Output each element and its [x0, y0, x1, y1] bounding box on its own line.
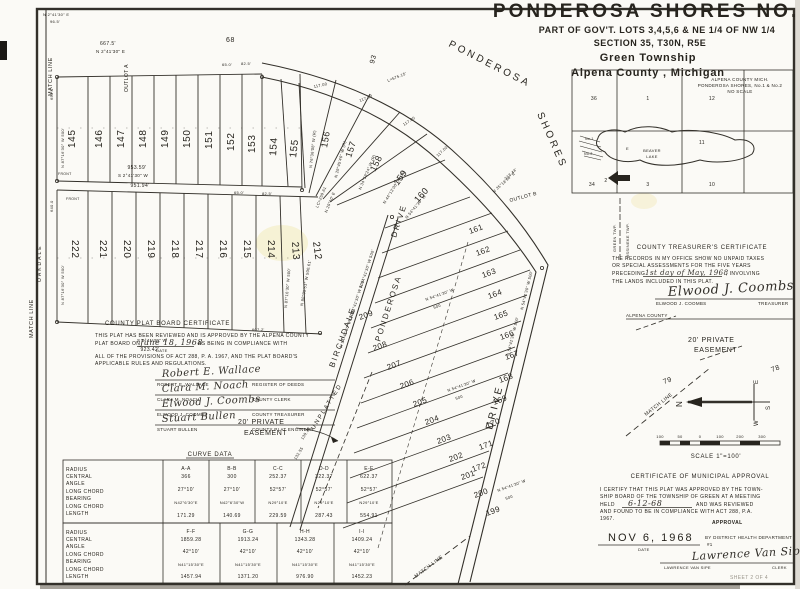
- scan-stain: [631, 193, 657, 209]
- inset-caption: NO SCALE: [727, 89, 752, 94]
- scale-segment: [740, 441, 760, 445]
- certificate-body: I CERTIFY THAT THIS PLAT WAS APPROVED BY…: [600, 487, 763, 493]
- lot-number: 218: [169, 240, 180, 259]
- curve-id: C-C: [273, 466, 283, 472]
- by-line: BY DISTRICT HEALTH DEPARTMENT: [705, 535, 792, 540]
- bearing-value: N29°10'E: [268, 500, 287, 505]
- section-number: 12: [709, 96, 715, 102]
- lot-number: 151: [204, 131, 215, 150]
- plat-county: Alpena County , Michigan: [571, 67, 725, 79]
- row-label: BEARING: [66, 559, 91, 565]
- compass-e-label: E: [754, 379, 760, 384]
- distance-label: 607.2': [252, 327, 265, 332]
- angle-value: 27°10': [178, 487, 194, 493]
- length-value: 554.91: [360, 513, 378, 519]
- section-number: 36: [591, 96, 597, 102]
- curve-id: G-G: [243, 529, 254, 535]
- certificate-body: THE RECORDS IN MY OFFICE SHOW NO UNPAID …: [612, 256, 765, 262]
- certificate-heading: COUNTY TREASURER'S CERTIFICATE: [637, 245, 767, 251]
- distance-label: 82.5': [262, 191, 272, 196]
- certificate-body: HELD: [600, 502, 615, 508]
- curve-id: A-A: [181, 466, 191, 472]
- length-value: 229.59: [269, 513, 287, 519]
- plat-title: PONDEROSA SHORES NO. 2: [493, 1, 800, 22]
- lot-number: 215: [241, 240, 252, 259]
- lot-number: 219: [145, 240, 156, 259]
- length-value: 1452.23: [352, 574, 373, 580]
- plat-section-line: SECTION 35, T30N, R5E: [594, 38, 707, 48]
- by-line: #1: [707, 542, 713, 547]
- lot-number: 221: [97, 240, 108, 259]
- plat-no1-label: No.1: [585, 137, 594, 141]
- bearing-value: N29°10'E: [314, 500, 333, 505]
- plat-subtitle: PART OF GOV'T. LOTS 3,4,5,6 & NE 1/4 OF …: [539, 25, 776, 35]
- bearing-value: N42°6'30"E: [174, 500, 197, 505]
- compass-s-label: S: [766, 405, 772, 410]
- oakdale-street-label: OAKDALE: [37, 244, 43, 282]
- radius-value: 1409.24: [352, 537, 373, 543]
- signer-name: ELWOOD J. COOMBS: [656, 301, 706, 306]
- row-label: LENGTH: [66, 511, 89, 517]
- angle-value: 52°57': [316, 487, 332, 493]
- certificate-body: 1967.: [600, 516, 615, 522]
- row-label: LONG CHORD: [66, 567, 104, 573]
- distance-label: 96.5': [50, 19, 60, 24]
- radius-value: 622.37: [360, 474, 378, 480]
- scale-segment: [700, 441, 720, 445]
- row-label: RADIUS: [66, 530, 88, 536]
- lot-number: 214: [265, 240, 276, 259]
- row-label: LONG CHORD: [66, 504, 104, 510]
- length-value: 1457.94: [181, 574, 202, 580]
- plat-map-canvas: PONDEROSA SHORES NO. 2 PART OF GOV'T. LO…: [0, 0, 800, 589]
- row-label: LONG CHORD: [66, 552, 104, 558]
- lot-number: 216: [217, 240, 228, 259]
- match-line-label: MATCH LINE: [48, 57, 54, 96]
- section-number: 1: [646, 96, 649, 102]
- plat-no2-label: No.2: [584, 152, 593, 156]
- signer-name: STUART BULLEN: [157, 427, 198, 432]
- row-label: BEARING: [66, 496, 91, 502]
- curve-id: D-D: [319, 466, 329, 472]
- easement-label: EASEMENT: [694, 347, 737, 354]
- lot-number: 147: [116, 130, 127, 149]
- distance-label: 667.5': [100, 41, 116, 47]
- radius-value: 322.37: [315, 474, 333, 480]
- table-title: CURVE DATA: [188, 452, 233, 458]
- bearing-value: N41°15'30"E: [292, 562, 318, 567]
- radius-value: 300: [227, 474, 237, 480]
- scale-segment: [660, 441, 670, 445]
- signer-title: REGISTER OF DEEDS: [252, 382, 304, 387]
- angle-value: 42°10': [354, 549, 370, 555]
- radius-value: 1859.28: [181, 537, 202, 543]
- county-label: ALPENA COUNTY: [626, 313, 668, 318]
- row-label: CENTRAL: [66, 474, 92, 480]
- outlot-a-label: OUTLOT A: [124, 64, 130, 92]
- length-value: 976.90: [296, 574, 314, 580]
- distance-label: 951.94': [130, 183, 149, 189]
- radius-value: 1913.24: [238, 537, 259, 543]
- angle-value: 42°10': [240, 549, 256, 555]
- scale-tick-label: 50: [677, 434, 683, 439]
- lot-number: 155: [288, 139, 301, 159]
- certificate-heading: CERTIFICATE OF MUNICIPAL APPROVAL: [631, 474, 770, 480]
- sheet-number: SHEET 2 OF 4: [730, 575, 768, 581]
- signer-name: LAWRENCE VAN SIPE: [664, 565, 711, 570]
- section-number: 34: [589, 182, 595, 188]
- green-twp-label: GREEN TWP.: [612, 224, 617, 252]
- row-label: ANGLE: [66, 481, 85, 487]
- approval-label: APPROVAL: [712, 520, 743, 526]
- ossineke-twp-label: OSSINEKE TWP.: [625, 223, 630, 258]
- handwritten-date: 1st day of May, 1968: [645, 269, 729, 277]
- bearing-value: N41°15'30"E: [349, 562, 375, 567]
- lot-number: 148: [138, 130, 149, 149]
- date-label: DATE: [638, 547, 650, 552]
- scale-tick-label: 200: [736, 434, 744, 439]
- length-value: 140.69: [223, 513, 241, 519]
- signer-title: TREASURER: [758, 301, 789, 306]
- certificate-body: APPLICABLE RULES AND REGULATIONS.: [95, 361, 207, 367]
- lot-number: 222: [69, 240, 80, 259]
- row-label: LENGTH: [66, 574, 89, 580]
- lake-name: BEAVER: [643, 148, 661, 153]
- certificate-body: AND FOUND TO BE IN COMPLIANCE WITH ACT 2…: [600, 509, 752, 515]
- distance-label: 82.5': [241, 61, 251, 66]
- curve-id: H-H: [300, 529, 310, 535]
- scale-tick-label: 100: [656, 434, 664, 439]
- lake-name: LAKE: [646, 154, 657, 159]
- bearing-value: N29°10'E: [359, 500, 378, 505]
- front-label: FRONT: [58, 172, 72, 176]
- distance-label: 65.0': [222, 62, 232, 67]
- section-number: 11: [699, 140, 705, 146]
- oakdale-street: OAKDALE: [37, 244, 43, 282]
- row-label: ANGLE: [66, 544, 85, 550]
- radius-value: 1343.28: [295, 537, 316, 543]
- lot-number: 149: [160, 130, 171, 149]
- signer-title: CLERK: [772, 565, 787, 570]
- lot-number: 217: [193, 240, 204, 259]
- inset-caption: ALPENA COUNTY MICH.: [711, 77, 768, 82]
- curve-id: F-F: [187, 529, 196, 535]
- length-value: 1371.20: [238, 574, 259, 580]
- lot-number: 220: [121, 240, 132, 259]
- distance-label: 953.59': [127, 165, 146, 171]
- signer-title: COUNTY PLAT ENGINEER: [252, 427, 314, 432]
- bearing-value: N42°6'30"W: [220, 500, 245, 505]
- handwritten-date: 6-12-68: [628, 499, 662, 508]
- compass-w-label: W: [754, 420, 760, 426]
- plat-township: Green Township: [600, 52, 697, 64]
- row-label: LONG CHORD: [66, 489, 104, 495]
- angle-value: 27°10': [224, 487, 240, 493]
- certificate-body: PRECEDING: [612, 271, 645, 277]
- bearing-label: N 87°16'30" W 500': [60, 128, 65, 168]
- scan-edge-mark: [0, 41, 7, 60]
- section-number: 10: [709, 182, 715, 188]
- inset-caption: PONDEROSA SHORES, No.1 & No.2: [698, 83, 783, 88]
- signer-title: COUNTY TREASURER: [252, 412, 305, 417]
- scale-tick-label: 100: [716, 434, 724, 439]
- certificate-body: , INVOLVING: [726, 271, 760, 277]
- certificate-heading: COUNTY PLAT BOARD CERTIFICATE: [105, 321, 230, 327]
- lot-number: 213: [289, 241, 301, 260]
- angle-value: 42°10': [183, 549, 199, 555]
- lot-number: 145: [67, 130, 78, 149]
- scanned-plat-page: PONDEROSA SHORES NO. 2 PART OF GOV'T. LO…: [0, 0, 800, 589]
- compass-n-label: N: [675, 401, 684, 407]
- handwritten-date: June 18, 1968: [138, 338, 203, 347]
- curve-id: I-I: [359, 529, 365, 535]
- section-number: 2: [604, 178, 607, 184]
- match-line-label: MATCH LINE: [29, 299, 35, 338]
- certificate-body: ALL OF THE PROVISIONS OF ACT 288, P. A. …: [95, 354, 298, 360]
- angle-value: 42°10': [297, 549, 313, 555]
- bearing-label: S 2°41'30" W: [118, 173, 149, 178]
- angle-value: 52°57': [270, 487, 286, 493]
- scale-segment: [680, 441, 690, 445]
- certificate-body: AND WAS REVIEWED: [696, 502, 754, 508]
- length-value: 171.29: [177, 513, 195, 519]
- certificate-body: PLAT BOARD ON: [95, 341, 140, 347]
- certificate-body: AS BEING IN COMPLIANCE WITH: [198, 341, 287, 347]
- curve-id: B-B: [227, 466, 237, 472]
- lot-number: 150: [182, 130, 193, 149]
- bearing-label: N 2°41'30" E: [43, 12, 69, 17]
- date-label: DATE: [156, 348, 168, 353]
- bearing-label: N 2°41'30" E: [96, 49, 125, 54]
- angle-value: 52°57': [361, 487, 377, 493]
- certificate-body: SHIP BOARD OF THE TOWNSHIP OF GREEN AT A…: [600, 494, 761, 500]
- lake-direction-label: E: [626, 146, 629, 151]
- row-label: CENTRAL: [66, 537, 92, 543]
- distance-label: 640.0: [49, 200, 54, 212]
- scale-label: SCALE 1"=100': [691, 454, 742, 460]
- radius-value: 252.37: [269, 474, 287, 480]
- bearing-value: N41°15'30"E: [178, 562, 204, 567]
- lot-number: 153: [247, 135, 258, 154]
- curve-id: E-E: [364, 466, 374, 472]
- lot-number: 154: [268, 137, 280, 156]
- adjacent-lot-number: 68: [226, 37, 235, 44]
- scale-tick-label: 300: [758, 434, 766, 439]
- bearing-value: N41°15'30"E: [235, 562, 261, 567]
- scan-right-edge: [795, 0, 800, 589]
- bearing-label: N 87°16'30" W 500': [60, 265, 65, 305]
- lot-number: 146: [94, 130, 105, 149]
- easement-label: 20' PRIVATE: [688, 337, 735, 344]
- section-number: 3: [646, 182, 649, 188]
- radius-value: 366: [181, 474, 191, 480]
- distance-label: 65.0': [234, 190, 244, 195]
- row-label: RADIUS: [66, 467, 88, 473]
- front-label: FRONT: [66, 197, 80, 201]
- lot-number: 152: [226, 133, 237, 152]
- approval-date-stamp: NOV 6, 1968: [608, 532, 694, 544]
- length-value: 287.43: [315, 513, 333, 519]
